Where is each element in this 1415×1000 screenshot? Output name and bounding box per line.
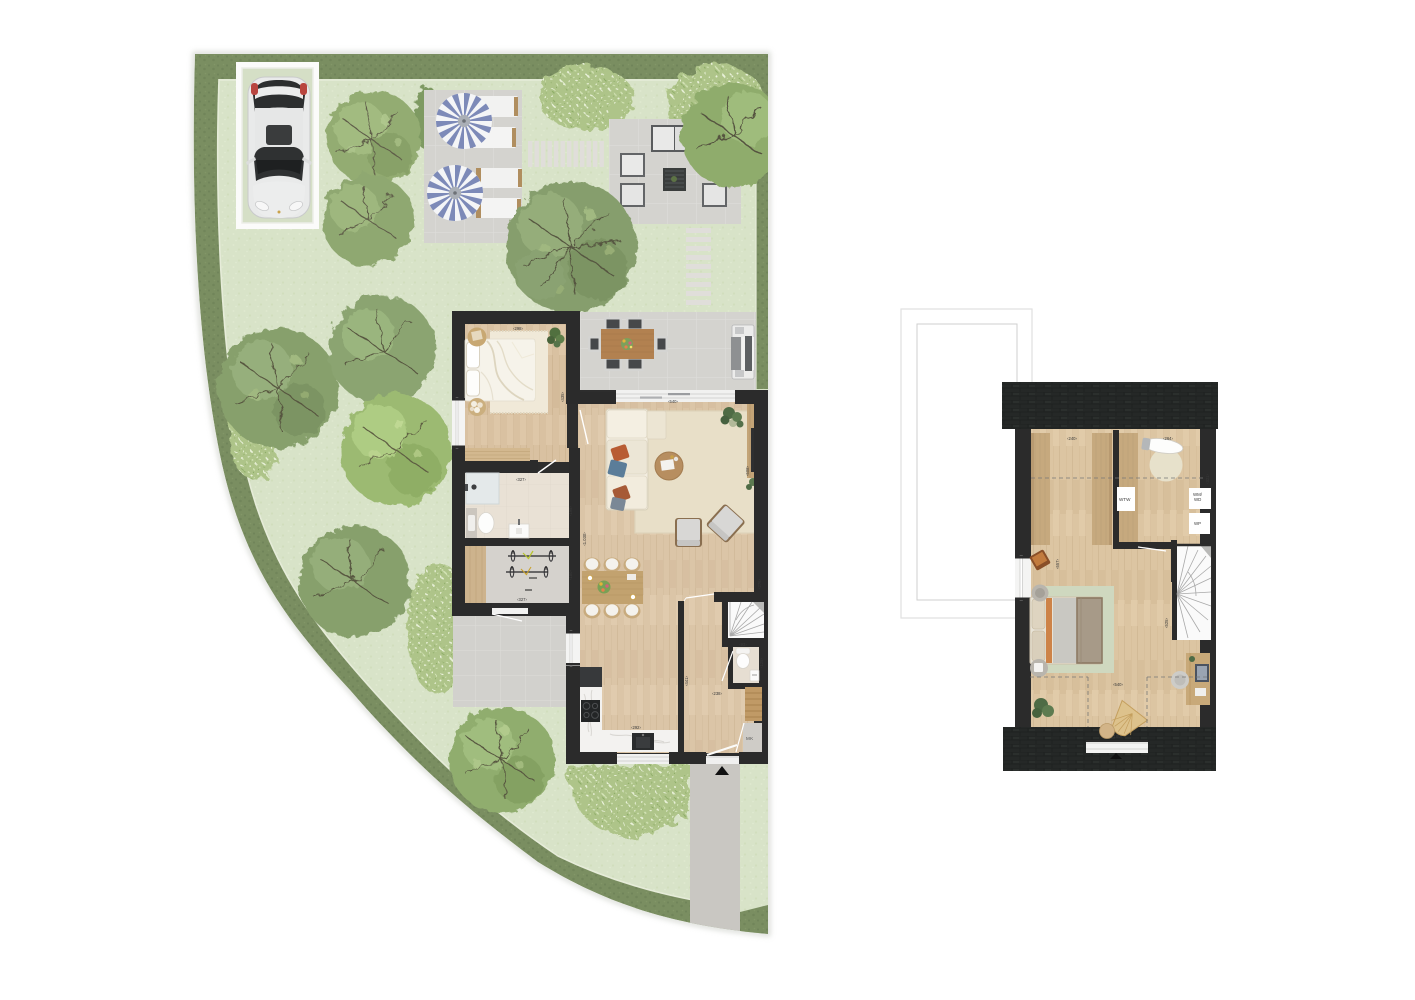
svg-text:WD: WD	[1194, 497, 1201, 502]
svg-text:‹1.030›: ‹1.030›	[582, 532, 587, 546]
svg-text:MK: MK	[746, 736, 754, 741]
svg-text:‹327›: ‹327›	[516, 477, 526, 482]
svg-text:‹180›: ‹180›	[568, 570, 573, 580]
svg-text:‹292›: ‹292›	[631, 725, 641, 730]
svg-text:‹93›: ‹93›	[739, 642, 747, 647]
svg-text:‹180›: ‹180›	[1112, 734, 1122, 739]
svg-text:WTW: WTW	[1119, 497, 1131, 502]
svg-text:‹240›: ‹240›	[1067, 436, 1077, 441]
svg-text:‹276›: ‹276›	[757, 579, 762, 589]
svg-text:‹540›: ‹540›	[1113, 682, 1123, 687]
svg-text:‹125›: ‹125›	[759, 658, 764, 668]
svg-text:‹327›: ‹327›	[517, 597, 527, 602]
svg-text:‹657›: ‹657›	[1055, 559, 1060, 569]
svg-text:WP: WP	[1194, 521, 1201, 526]
svg-text:‹321›: ‹321›	[1205, 474, 1210, 484]
svg-text:‹435›: ‹435›	[560, 392, 565, 402]
svg-text:‹264›: ‹264›	[1163, 436, 1173, 441]
svg-text:‹441›: ‹441›	[684, 676, 689, 686]
svg-text:‹195›: ‹195›	[568, 506, 573, 516]
svg-text:‹238›: ‹238›	[712, 691, 722, 696]
svg-text:‹608›: ‹608›	[745, 466, 750, 476]
svg-text:‹525›: ‹525›	[1164, 618, 1169, 628]
svg-text:‹298›: ‹298›	[513, 326, 523, 331]
svg-text:‹540›: ‹540›	[668, 399, 678, 404]
